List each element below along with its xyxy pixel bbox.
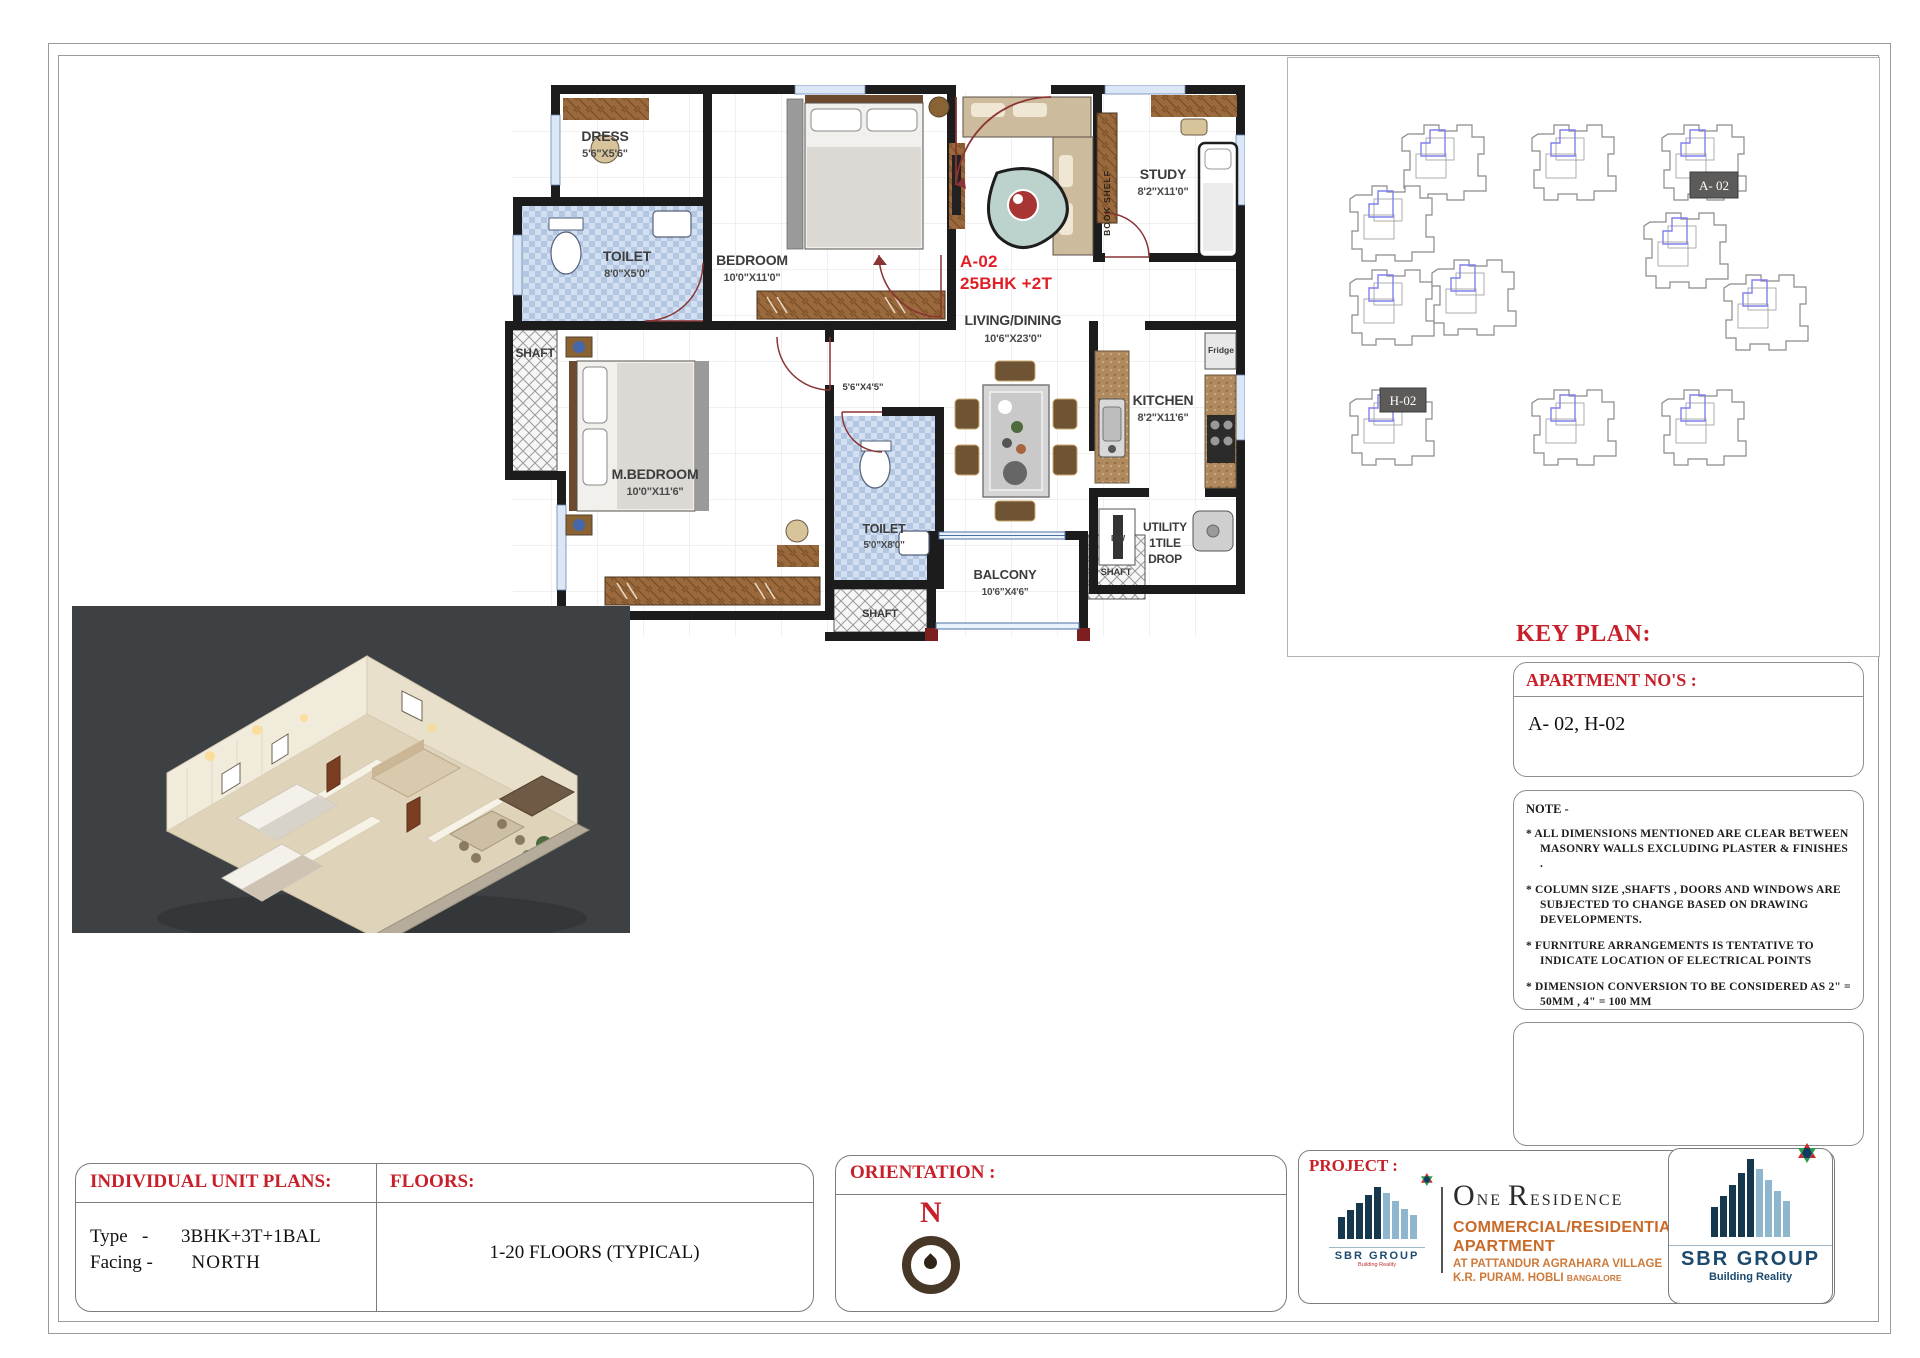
unit-plans-title: INDIVIDUAL UNIT PLANS: [90,1171,331,1193]
project-type-1: COMMERCIAL/RESIDENTIAL [1453,1219,1681,1237]
dims-study: 8'2"X11'0" [1138,186,1189,198]
apartment-nos-box: APARTMENT NO'S : A- 02, H-02 [1513,662,1864,777]
project-type-2: APARTMENT [1453,1238,1555,1256]
apartment-nos-value: A- 02, H-02 [1514,697,1863,752]
label-dw: DW [1111,533,1126,543]
sbr-name-small: SBR GROUP [1329,1247,1425,1262]
note-item-4: * DIMENSION CONVERSION TO BE CONSIDERED … [1526,980,1851,1010]
bedroom-wardrobe [757,291,945,319]
wall-end-marker [925,628,938,641]
note-item-3: * FURNITURE ARRANGEMENTS IS TENTATIVE TO… [1526,939,1851,969]
dims-kitchen: 8'2"X11'6" [1138,412,1189,424]
project-name-r: R [1508,1179,1530,1212]
facing-label: Facing - [90,1252,153,1273]
note-title: NOTE - [1526,801,1851,817]
sbr-brand-panel: SBR GROUP Building Reality [1668,1148,1833,1304]
key-plan-drawing: A- 02 H-02 [1290,60,1876,605]
dims-mbedroom: 10'0"X11'6" [627,486,684,498]
key-plan-panel: A- 02 H-02 KEY PLAN: [1287,57,1880,657]
label-bedroom: BEDROOM [716,252,788,268]
note-box: NOTE - * ALL DIMENSIONS MENTIONED ARE CL… [1513,790,1864,1010]
note-item-2: * COLUMN SIZE ,SHAFTS , DOORS AND WINDOW… [1526,883,1851,928]
label-toilet2: TOILET [862,522,906,536]
dims-balcony: 10'6"X4'6" [982,587,1029,598]
floors-value: 1-20 FLOORS (TYPICAL) [376,1242,813,1264]
facing-value: NORTH [192,1252,261,1273]
label-mbedroom: M.BEDROOM [612,466,699,482]
label-study: STUDY [1140,166,1187,182]
north-letter: N [920,1196,942,1230]
svg-text:H-02: H-02 [1390,393,1417,408]
svg-text:A- 02: A- 02 [1699,178,1729,193]
project-name-esidence: ESIDENCE [1530,1192,1623,1209]
dims-passage: 5'6"X4'5" [843,382,884,393]
project-address-1: AT PATTANDUR AGRAHARA VILLAGE [1453,1257,1662,1271]
key-plan-tag-h02: H-02 [1380,388,1426,412]
floors-title: FLOORS: [390,1171,474,1193]
type-value: 3BHK+3T+1BAL [181,1226,321,1247]
label-dress: DRESS [581,128,628,144]
orientation-divider [836,1194,1286,1195]
key-plan-title: KEY PLAN: [1288,621,1879,648]
sbr-logo-small: SBR GROUP Building Reality [1329,1187,1425,1268]
logo-divider [1441,1187,1443,1273]
sbr-tagline-large: Building Reality [1669,1271,1832,1283]
label-kitchen: KITCHEN [1133,392,1194,408]
mbedroom-wardrobe [605,577,820,605]
dims-toilet1: 8'0"X5'0" [604,268,650,280]
unit-type: 25BHK +2T [960,274,1052,293]
label-toilet1: TOILET [603,248,652,264]
dims-dress: 5'6"X5'6" [582,148,628,160]
dims-living: 10'6"X23'0" [984,333,1042,345]
label-balcony: BALCONY [974,567,1037,582]
apartment-nos-title: APARTMENT NO'S : [1514,663,1863,697]
project-address-2: K.R. PURAM. HOBLI BANGALORE [1453,1271,1622,1285]
dims-toilet2: 5'0"X8'0" [863,540,905,551]
column-divider [376,1164,377,1311]
label-shaft3: SHAFT [1101,567,1132,578]
compass-icon [902,1236,960,1294]
orientation-title: ORIENTATION : [850,1162,996,1184]
drawing-sheet: DRESS 5'6"X5'6" TOILET 8'0"X5'0" BEDROOM… [0,0,1920,1358]
empty-panel [1513,1022,1864,1146]
label-living: LIVING/DINING [965,312,1062,328]
project-name: ONERESIDENCE [1453,1179,1623,1213]
project-name-ne: NE [1477,1192,1502,1209]
balcony-railing [936,623,1079,629]
orientation-box: ORIENTATION : N [835,1155,1287,1312]
floor-plan: DRESS 5'6"X5'6" TOILET 8'0"X5'0" BEDROOM… [505,85,1245,662]
dims-bedroom: 10'0"X11'0" [724,272,781,284]
label-shaft1: SHAFT [516,346,556,360]
project-address-2-main: K.R. PURAM. HOBLI [1453,1272,1567,1284]
label-book-shelf: BOOK SHELF [1102,170,1112,236]
label-shaft2: SHAFT [862,608,898,620]
project-title: PROJECT : [1309,1156,1398,1176]
label-fridge: Fridge [1208,345,1234,355]
unit-plans-box: INDIVIDUAL UNIT PLANS: FLOORS: Type - 3B… [75,1163,814,1312]
type-label: Type - [90,1226,148,1247]
header-divider [76,1202,813,1203]
unit-code: A-02 [960,252,998,271]
key-plan-tag-a02: A- 02 [1690,172,1738,198]
note-item-1: * ALL DIMENSIONS MENTIONED ARE CLEAR BET… [1526,827,1851,872]
project-address-2-city: BANGALORE [1567,1273,1622,1283]
render-3d [72,606,630,933]
sbr-tagline-small: Building Reality [1329,1262,1425,1268]
label-utility-3: DROP [1148,552,1182,566]
project-name-o: O [1453,1179,1477,1212]
sbr-name-large: SBR GROUP [1669,1245,1832,1271]
wall-end-marker [1077,628,1090,641]
label-utility-2: 1TILE [1149,536,1181,550]
label-utility-1: UTILITY [1143,520,1187,534]
sbr-logo-large: SBR GROUP Building Reality [1669,1159,1832,1283]
